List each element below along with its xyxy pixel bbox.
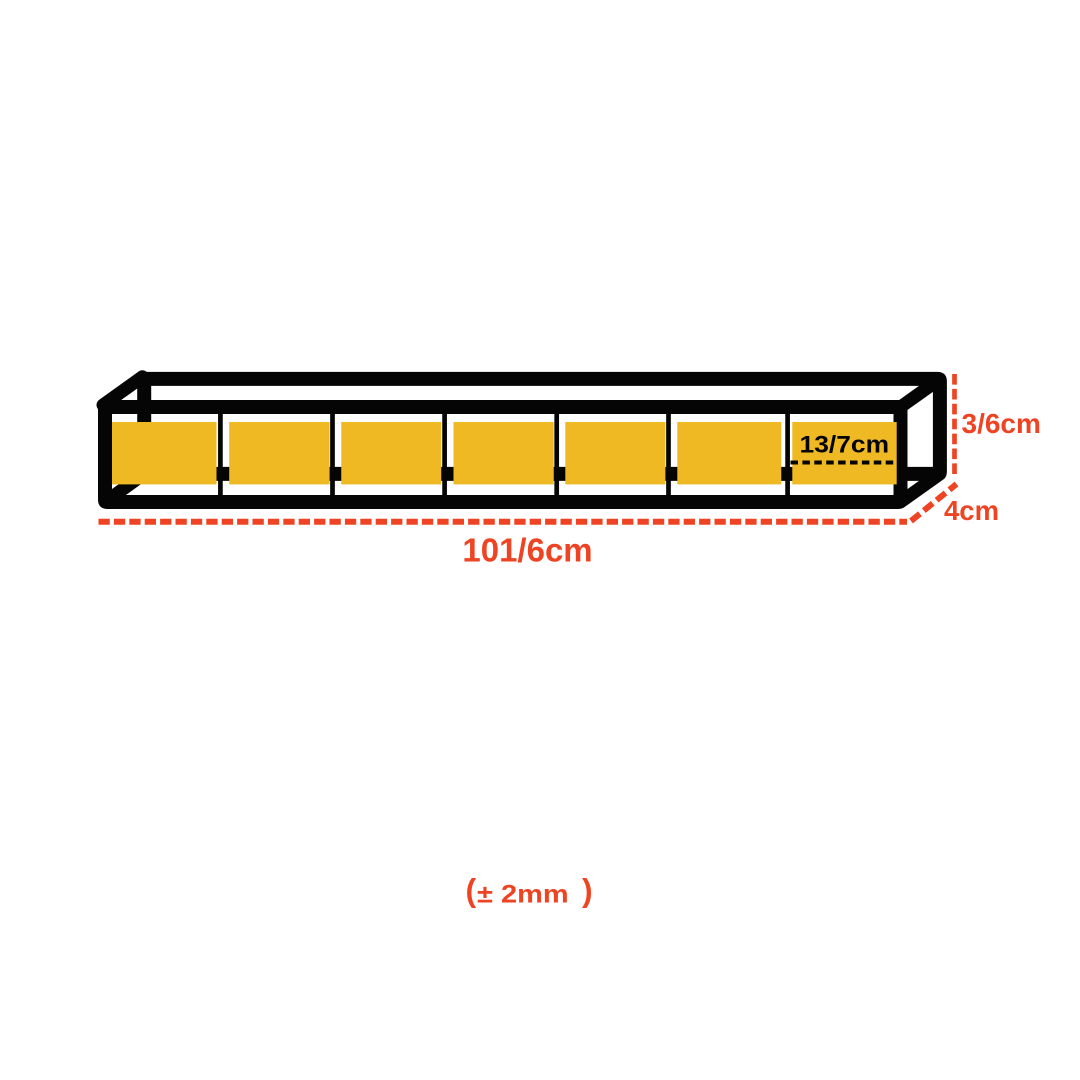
svg-text:3/6cm: 3/6cm	[962, 408, 1041, 439]
svg-text:4cm: 4cm	[944, 495, 999, 526]
svg-text:(: (	[466, 873, 477, 909]
svg-text:101/6cm: 101/6cm	[462, 532, 592, 569]
svg-text:± 2mm: ± 2mm	[477, 879, 569, 908]
svg-text:): )	[582, 873, 593, 909]
svg-text:13/7cm: 13/7cm	[800, 432, 890, 459]
